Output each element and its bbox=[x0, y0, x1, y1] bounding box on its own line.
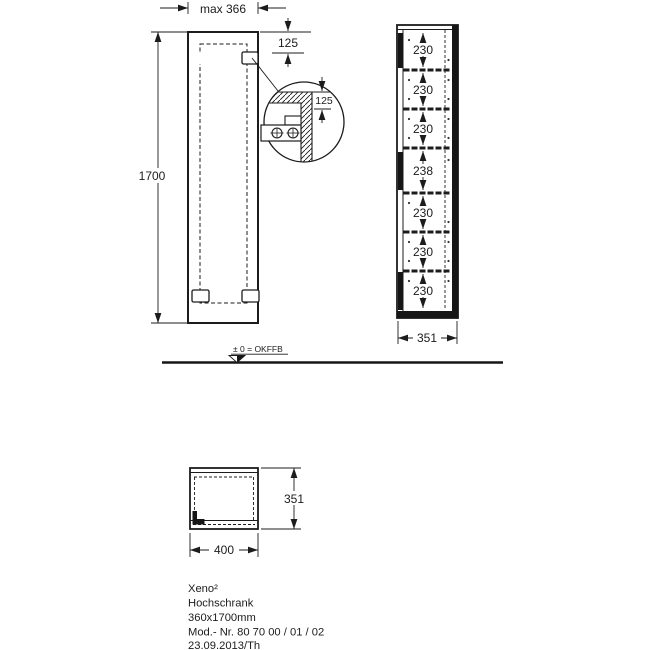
mount-bracket-bottom-left bbox=[192, 290, 209, 302]
detail-circle: 125 bbox=[252, 58, 344, 162]
front-offset-label: 125 bbox=[278, 36, 298, 50]
cabinet-technical-drawing: max 366 1700 125 bbox=[0, 0, 650, 650]
title-size: 360x1700mm bbox=[188, 612, 256, 624]
hinge-mark-top bbox=[398, 33, 403, 68]
mount-bracket-top-left bbox=[189, 52, 205, 64]
title-model-no: Mod.- Nr. 80 70 00 / 01 / 02 bbox=[188, 627, 324, 639]
compartment-7-label: 230 bbox=[413, 284, 433, 298]
front-view bbox=[188, 32, 259, 323]
top-depth-label: 351 bbox=[284, 492, 304, 506]
dim-front-offset: 125 bbox=[260, 18, 311, 67]
side-view: 230 230 230 238 230 bbox=[397, 25, 458, 318]
title-block: Xeno² Hochschrank 360x1700mm Mod.- Nr. 8… bbox=[188, 583, 324, 650]
dim-front-height: 1700 bbox=[136, 32, 187, 323]
hinge-mark-bottom bbox=[398, 272, 403, 310]
compartment-3-label: 230 bbox=[413, 122, 433, 136]
title-series: Xeno² bbox=[188, 583, 218, 595]
compartment-4-label: 238 bbox=[413, 164, 433, 178]
dim-front-width: max 366 bbox=[160, 2, 286, 16]
dim-top-width: 400 bbox=[190, 533, 258, 557]
title-date: 23.09.2013/Th bbox=[188, 640, 260, 650]
floor-line-group: ± 0 = OKFFB bbox=[162, 344, 503, 363]
detail-bracket-tab bbox=[285, 116, 301, 125]
front-view-door-outline bbox=[200, 44, 247, 303]
compartment-2-label: 230 bbox=[413, 83, 433, 97]
side-depth-label: 351 bbox=[417, 331, 437, 345]
technical-drawing-page: max 366 1700 125 bbox=[0, 0, 650, 650]
level-label: ± 0 = OKFFB bbox=[233, 344, 283, 354]
mount-bracket-bottom-right bbox=[242, 290, 259, 302]
top-view bbox=[190, 468, 258, 529]
detail-leader-line bbox=[252, 58, 278, 91]
compartment-5-label: 230 bbox=[413, 206, 433, 220]
compartment-6-label: 230 bbox=[413, 245, 433, 259]
compartment-1-label: 230 bbox=[413, 43, 433, 57]
dim-side-depth: 351 bbox=[398, 321, 457, 345]
front-width-label: max 366 bbox=[200, 2, 246, 16]
side-view-bottom-panel bbox=[397, 311, 458, 318]
top-width-label: 400 bbox=[214, 543, 234, 557]
front-height-label: 1700 bbox=[139, 169, 166, 183]
title-type: Hochschrank bbox=[188, 598, 254, 610]
dim-top-depth: 351 bbox=[261, 468, 309, 529]
side-view-door-front bbox=[452, 25, 458, 318]
hinge-mark-middle bbox=[398, 152, 403, 190]
detail-offset-label: 125 bbox=[315, 95, 333, 107]
